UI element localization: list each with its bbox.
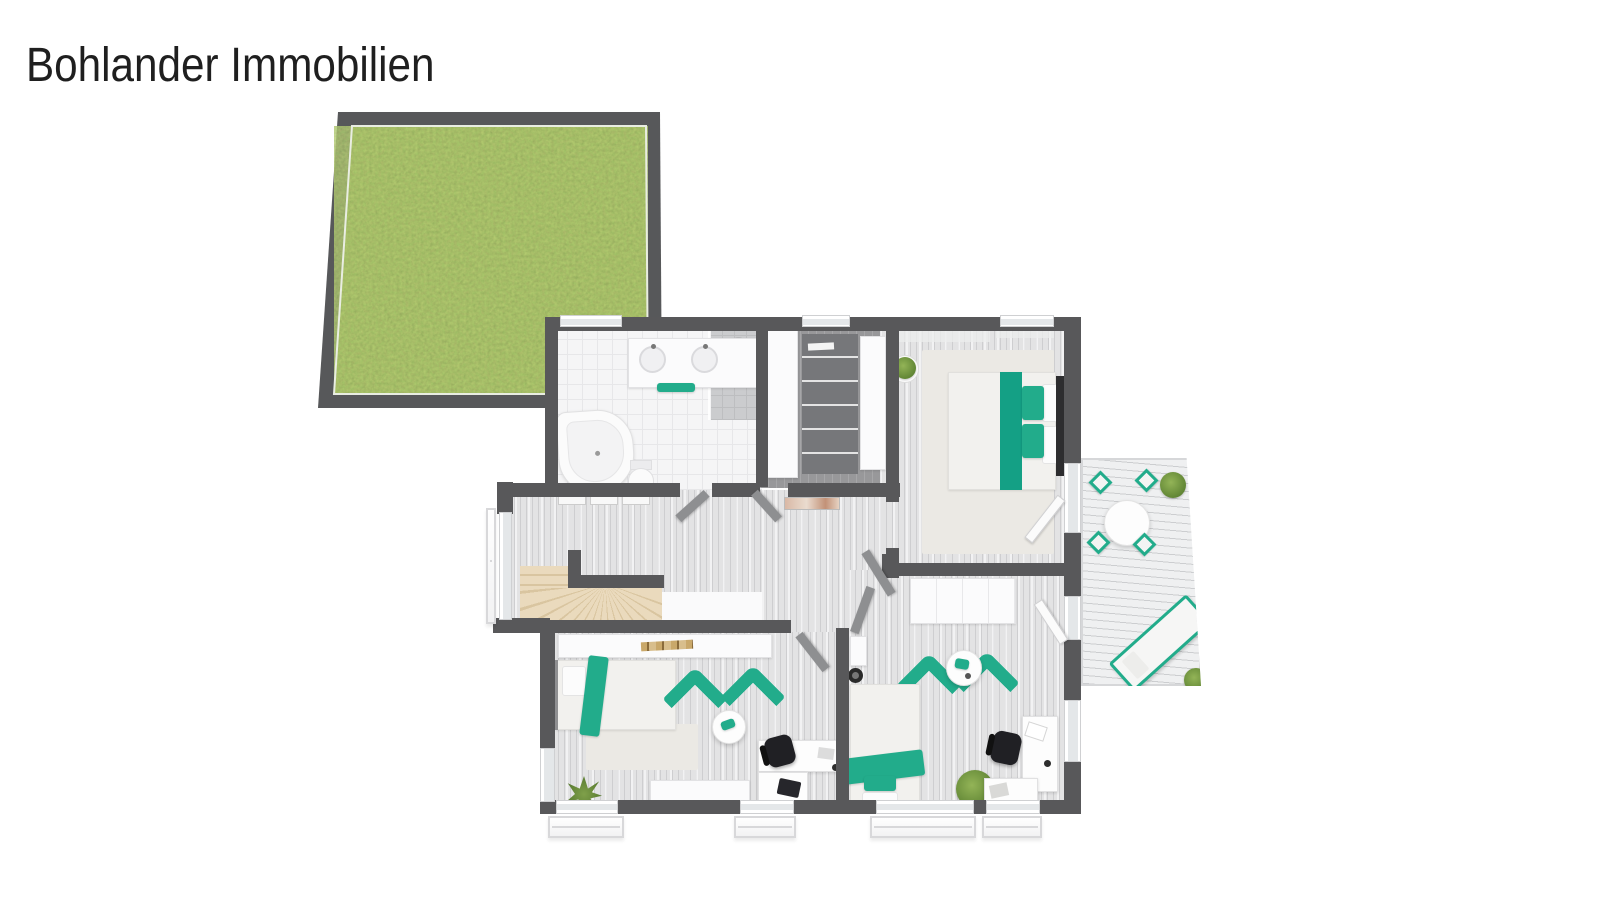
stairwell-wall [568, 575, 664, 588]
shrub [1184, 668, 1208, 692]
desk-lamp [1044, 760, 1051, 767]
dining-chair [1134, 468, 1158, 492]
decor-books [641, 640, 693, 652]
terrace-deck [1081, 458, 1201, 686]
coffee-table [946, 650, 982, 686]
teal-stool [864, 776, 896, 791]
wall-picture [784, 497, 840, 510]
wall-east [1064, 317, 1081, 463]
wall-closet-bedroom [886, 317, 899, 502]
window-sill [982, 816, 1042, 838]
wardrobe [860, 336, 886, 470]
terrace-door-glass [1064, 463, 1081, 533]
headboard [1056, 376, 1064, 476]
sink [691, 346, 718, 373]
wall-rooms-divider [836, 628, 849, 814]
window-sill [870, 816, 976, 838]
book [720, 718, 736, 731]
wall-bedroom-south [895, 563, 1064, 576]
window [876, 800, 974, 814]
window-room-br [1064, 700, 1081, 762]
open-closet [802, 334, 858, 474]
closet-shelf-item [808, 342, 834, 350]
window-sill [486, 508, 496, 624]
wall-room-bl-north [545, 620, 791, 633]
shrub [1160, 472, 1186, 498]
wall-landing-south [493, 618, 550, 633]
coffee-table [712, 710, 746, 744]
window [802, 315, 850, 327]
pillow [562, 666, 586, 696]
book [954, 658, 970, 670]
wall-bathroom-west [545, 317, 558, 493]
terrace-door-glass [1064, 596, 1081, 640]
window-sill [734, 816, 796, 838]
teal-pillow [1022, 424, 1044, 458]
dining-chair [1088, 470, 1112, 494]
window [986, 800, 1040, 814]
niche-cabinet [850, 636, 867, 666]
rug [586, 724, 698, 770]
window [560, 315, 622, 327]
teal-pillow [1022, 386, 1044, 420]
faucet [703, 344, 708, 349]
niche-basin [848, 668, 863, 683]
faucet [651, 344, 656, 349]
wall-east [1064, 640, 1081, 700]
window [1000, 315, 1054, 327]
window-room-bl [540, 748, 555, 802]
wall-east [1064, 533, 1081, 596]
wall-bath-closet [756, 317, 768, 487]
window-landing [499, 512, 512, 620]
wall-landing-north [788, 483, 900, 497]
window [740, 800, 794, 814]
window [556, 800, 618, 814]
teal-bed-runner [1000, 372, 1022, 490]
wardrobe [910, 578, 1016, 624]
sink [639, 346, 666, 373]
cup [965, 673, 971, 679]
double-sink-vanity [628, 338, 758, 388]
wall-landing-north [497, 483, 680, 497]
papers [817, 747, 834, 760]
wall-east [1064, 762, 1081, 814]
teal-towel [657, 383, 695, 392]
lounger-pillow [1122, 651, 1150, 680]
wall-room-bl-west [540, 632, 555, 750]
wardrobe [764, 330, 798, 478]
window-sill [548, 816, 624, 838]
wall-stub [497, 482, 513, 514]
brand-logo: Bohlander Immobilien [26, 38, 435, 93]
